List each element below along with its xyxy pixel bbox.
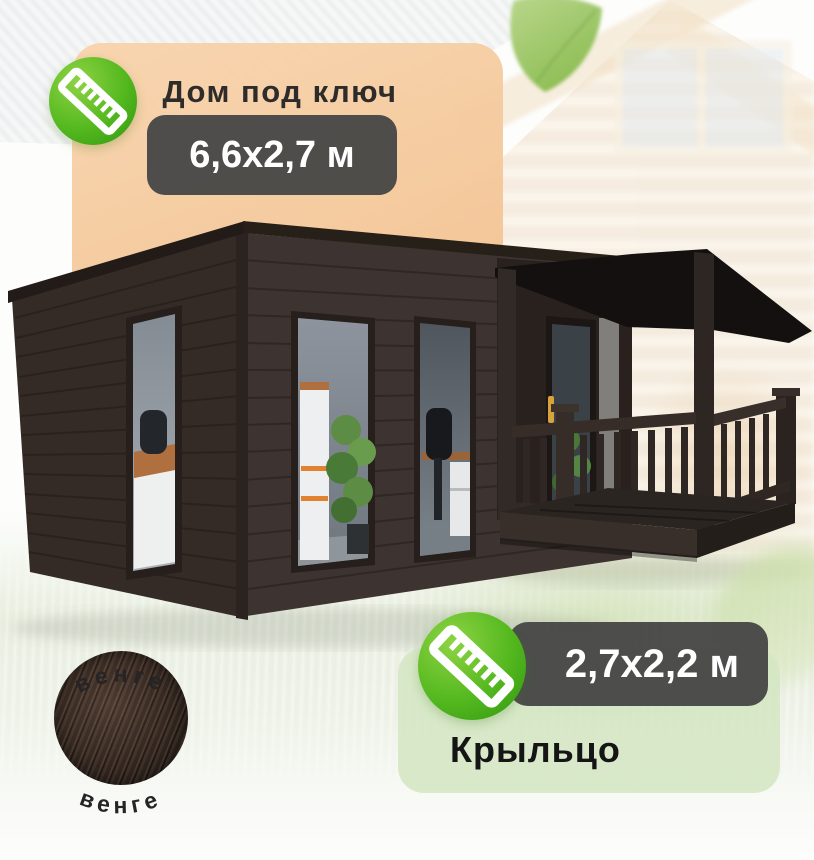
house-size-badge: 6,6х2,7 м: [147, 115, 397, 195]
porch-card-label: Крыльцо: [450, 729, 621, 771]
material-swatch-wenge: [54, 651, 188, 785]
ruler-icon: [418, 612, 526, 720]
leaf-icon-top: [480, 0, 640, 115]
promo-banner: Дом под ключ 6,6х2,7 м: [0, 0, 814, 860]
house-card-title: Дом под ключ: [142, 74, 418, 110]
ruler-icon: [49, 57, 137, 145]
background-window: [614, 40, 792, 156]
porch-size-badge: 2,7х2,2 м: [508, 622, 768, 706]
